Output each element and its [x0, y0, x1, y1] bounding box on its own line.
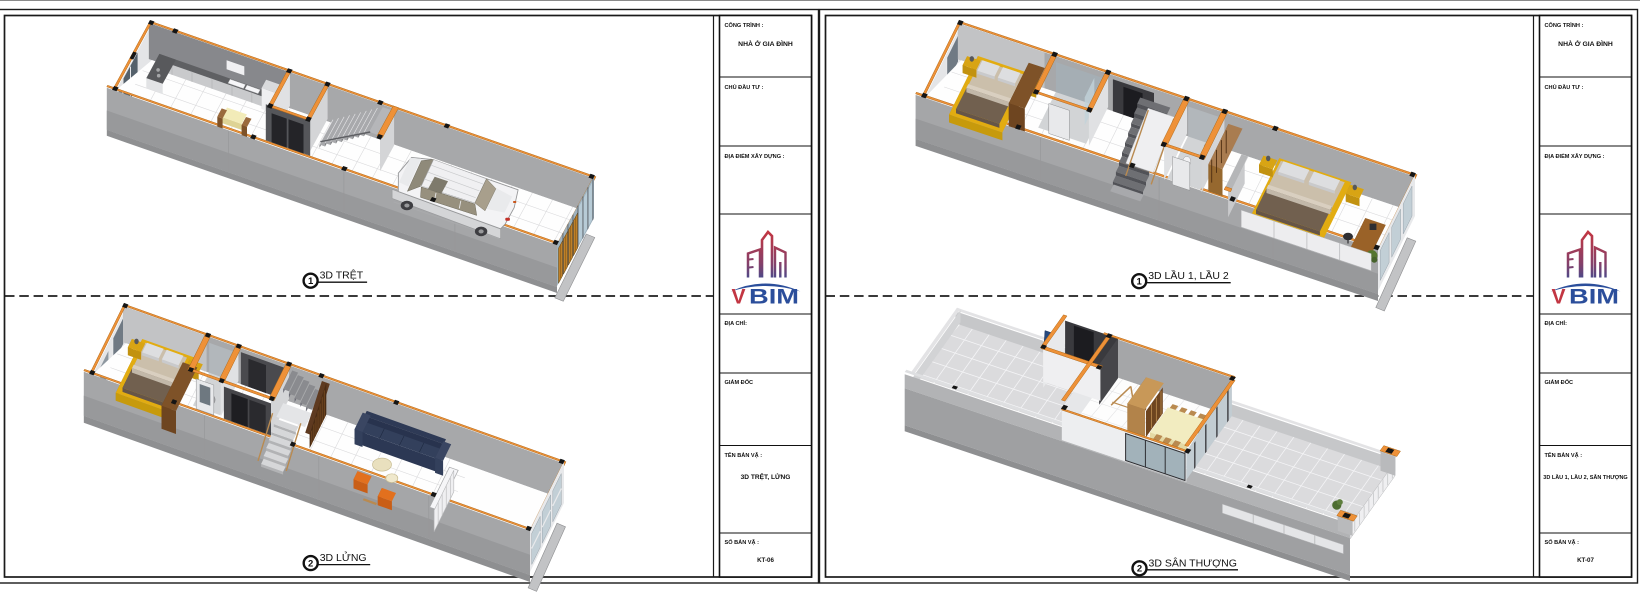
svg-text:V: V	[1552, 286, 1566, 309]
svg-text:GIÁM ĐỐC: GIÁM ĐỐC	[725, 379, 754, 386]
svg-text:KT-07: KT-07	[1577, 557, 1594, 564]
svg-text:3D SÂN THƯỢNG: 3D SÂN THƯỢNG	[1149, 556, 1237, 569]
svg-text:CÔNG TRÌNH :: CÔNG TRÌNH :	[1545, 21, 1584, 29]
svg-text:BIM: BIM	[749, 286, 799, 309]
svg-text:3D TRỆT, LỬNG: 3D TRỆT, LỬNG	[741, 472, 791, 481]
svg-text:KT-06: KT-06	[757, 557, 774, 564]
svg-text:NHÀ Ở GIA ĐÌNH: NHÀ Ở GIA ĐÌNH	[1558, 39, 1613, 48]
svg-text:SỐ BẢN VẶ :: SỐ BẢN VẶ :	[1545, 539, 1580, 546]
svg-text:2: 2	[1137, 564, 1142, 575]
svg-text:ĐỊA CHỈ:: ĐỊA CHỈ:	[1545, 320, 1568, 327]
svg-text:NHÀ Ở GIA ĐÌNH: NHÀ Ở GIA ĐÌNH	[738, 39, 793, 48]
svg-text:3D TRỆT: 3D TRỆT	[320, 269, 364, 282]
svg-text:ĐỊA CHỈ:: ĐỊA CHỈ:	[725, 320, 748, 327]
svg-text:CHỦ ĐẦU TƯ :: CHỦ ĐẦU TƯ :	[725, 84, 764, 91]
svg-text:ĐỊA ĐIỂM XÂY DỰNG :: ĐỊA ĐIỂM XÂY DỰNG :	[1545, 153, 1605, 160]
svg-text:CHỦ ĐẦU TƯ :: CHỦ ĐẦU TƯ :	[1545, 84, 1584, 91]
svg-text:TÊN BẢN VẶ :: TÊN BẢN VẶ :	[1545, 451, 1583, 459]
svg-text:GIÁM ĐỐC: GIÁM ĐỐC	[1545, 379, 1574, 386]
svg-text:3D LẦU 1, LẦU 2, SÂN THƯỢNG: 3D LẦU 1, LẦU 2, SÂN THƯỢNG	[1543, 474, 1627, 481]
svg-text:V: V	[732, 286, 746, 309]
svg-text:ĐỊA ĐIỂM XÂY DỰNG :: ĐỊA ĐIỂM XÂY DỰNG :	[725, 153, 785, 160]
svg-text:1: 1	[308, 276, 314, 287]
svg-text:2: 2	[308, 559, 313, 570]
svg-text:SỐ BẢN VẶ :: SỐ BẢN VẶ :	[725, 539, 760, 546]
svg-text:CÔNG TRÌNH :: CÔNG TRÌNH :	[725, 21, 764, 29]
svg-text:BIM: BIM	[1569, 286, 1619, 309]
svg-text:3D LẦU 1, LẦU 2: 3D LẦU 1, LẦU 2	[1148, 269, 1229, 282]
svg-text:3D LỬNG: 3D LỬNG	[320, 551, 367, 564]
svg-text:TÊN BẢN VẶ :: TÊN BẢN VẶ :	[725, 451, 763, 459]
svg-text:1: 1	[1137, 277, 1143, 288]
